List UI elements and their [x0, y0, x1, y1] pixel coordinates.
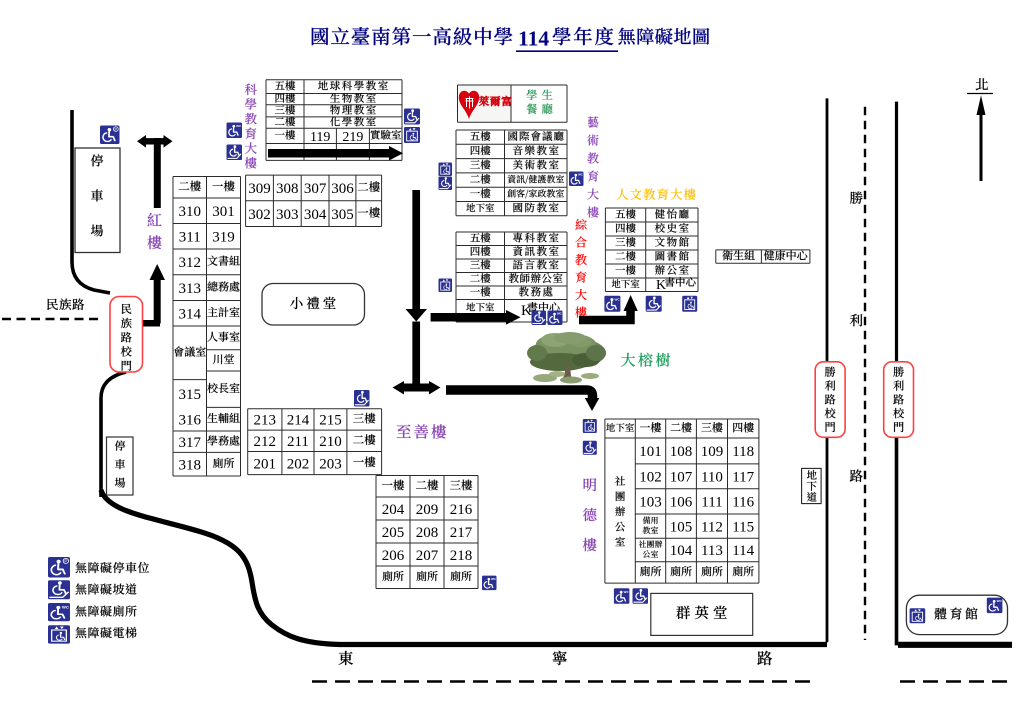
svg-text:307: 307: [304, 181, 327, 197]
svg-text:112: 112: [701, 519, 723, 535]
svg-text:310: 310: [179, 204, 202, 220]
svg-text:302: 302: [248, 207, 271, 223]
svg-text:218: 218: [450, 548, 473, 564]
svg-text:318: 318: [179, 457, 202, 473]
svg-text:105: 105: [670, 519, 693, 535]
svg-text:116: 116: [732, 495, 754, 511]
svg-text:115: 115: [732, 519, 754, 535]
svg-text:216: 216: [450, 502, 473, 518]
svg-text:319: 319: [212, 230, 235, 246]
svg-text:214: 214: [287, 413, 310, 429]
svg-text:217: 217: [450, 525, 473, 541]
svg-text:201: 201: [254, 456, 277, 472]
svg-text:101: 101: [639, 444, 662, 460]
svg-text:119: 119: [310, 130, 330, 145]
svg-text:213: 213: [254, 413, 277, 429]
svg-text:315: 315: [179, 387, 202, 403]
svg-text:118: 118: [732, 444, 754, 460]
svg-text:212: 212: [254, 434, 277, 450]
svg-text:206: 206: [382, 548, 405, 564]
svg-text:110: 110: [701, 470, 723, 486]
svg-text:114: 114: [732, 543, 754, 559]
svg-text:313: 313: [179, 281, 202, 297]
svg-text:303: 303: [276, 207, 299, 223]
svg-text:304: 304: [304, 207, 327, 223]
svg-text:111: 111: [701, 495, 722, 511]
svg-text:113: 113: [701, 543, 723, 559]
svg-text:202: 202: [287, 456, 310, 472]
svg-text:211: 211: [287, 434, 309, 450]
svg-text:203: 203: [319, 456, 342, 472]
svg-text:311: 311: [179, 230, 201, 246]
svg-text:108: 108: [670, 444, 693, 460]
svg-text:106: 106: [670, 495, 693, 511]
svg-text:215: 215: [319, 413, 342, 429]
svg-text:K: K: [656, 278, 666, 293]
svg-text:316: 316: [179, 412, 202, 428]
svg-text:306: 306: [331, 181, 354, 197]
svg-text:308: 308: [276, 181, 299, 197]
svg-text:102: 102: [639, 470, 662, 486]
svg-text:107: 107: [670, 470, 693, 486]
svg-text:210: 210: [319, 434, 342, 450]
svg-text:209: 209: [416, 502, 439, 518]
svg-text:312: 312: [179, 255, 202, 271]
svg-text:219: 219: [342, 130, 363, 145]
svg-text:309: 309: [248, 181, 271, 197]
svg-text:117: 117: [732, 470, 754, 486]
svg-text:205: 205: [382, 525, 405, 541]
svg-text:114: 114: [518, 27, 549, 51]
svg-text:109: 109: [701, 444, 724, 460]
svg-text:208: 208: [416, 525, 439, 541]
svg-text:301: 301: [212, 204, 235, 220]
svg-text:103: 103: [639, 495, 662, 511]
svg-text:317: 317: [179, 435, 202, 451]
svg-text:204: 204: [382, 502, 405, 518]
svg-text:207: 207: [416, 548, 439, 564]
svg-text:104: 104: [670, 543, 693, 559]
svg-text:314: 314: [179, 307, 202, 323]
svg-text:305: 305: [331, 207, 354, 223]
